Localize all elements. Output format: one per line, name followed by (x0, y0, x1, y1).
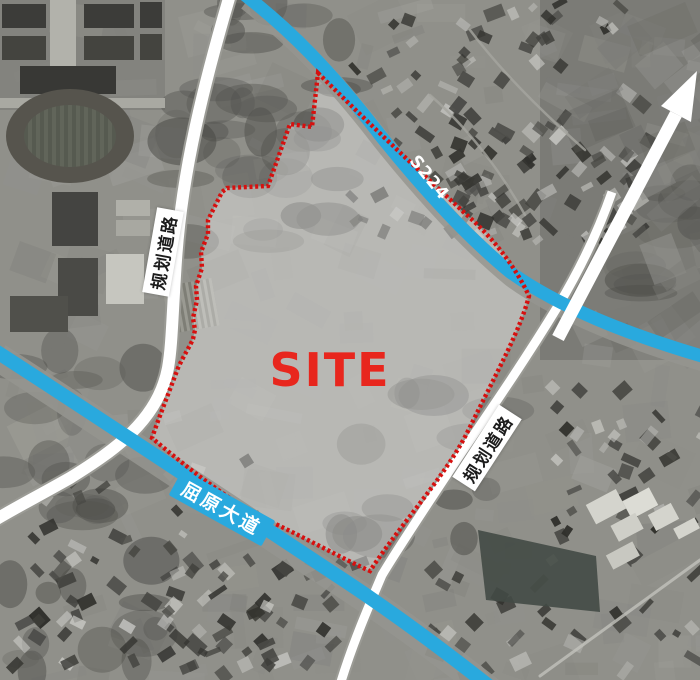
terrain-patch (484, 85, 504, 104)
terrain-patch (565, 663, 598, 675)
site-label: SITE (269, 343, 390, 397)
terrain-patch (450, 522, 477, 555)
terrain-patch (417, 4, 465, 22)
terrain-patch (41, 328, 78, 374)
terrain-patch (244, 107, 276, 156)
stadium-track (6, 89, 134, 183)
satellite-site-map: S224 屈原大道 规划道路 规划道路 SITE (0, 0, 700, 680)
terrain-patch (110, 79, 157, 96)
terrain-patch (323, 18, 355, 62)
terrain-patch (582, 343, 613, 367)
terrain-patch (521, 375, 544, 394)
terrain-patch (654, 660, 677, 680)
terrain-patch (36, 582, 62, 604)
terrain-patch (497, 499, 535, 523)
terrain-patch (179, 77, 253, 101)
terrain-patch (74, 356, 126, 390)
map-canvas (0, 0, 700, 680)
terrain-patch (475, 508, 495, 521)
terrain-patch (32, 546, 52, 563)
